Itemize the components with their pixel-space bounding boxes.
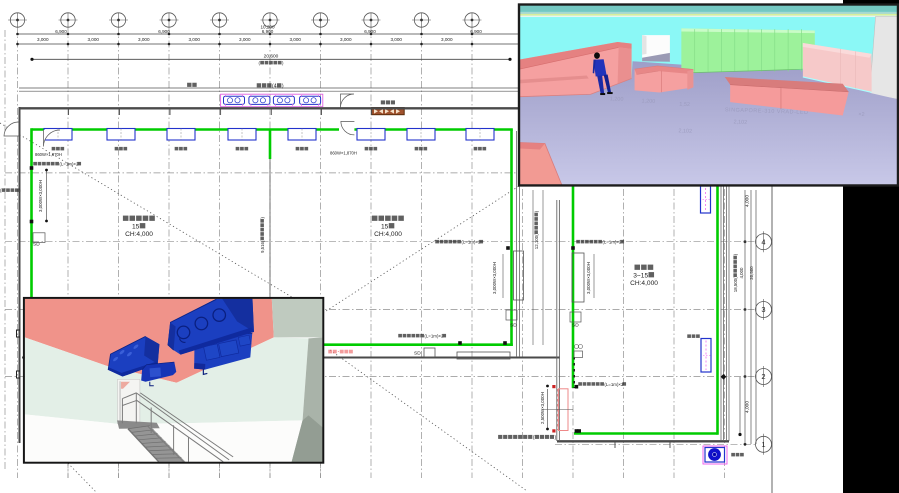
svg-text:3: 3 bbox=[761, 305, 765, 314]
svg-text:3,000: 3,000 bbox=[87, 37, 99, 42]
svg-text:3,000W×3,000H: 3,000W×3,000H bbox=[492, 262, 497, 294]
svg-text:10,200: 10,200 bbox=[260, 25, 274, 30]
svg-text:(L=1m)×2: (L=1m)×2 bbox=[461, 240, 481, 245]
svg-text:2,102: 2,102 bbox=[733, 119, 747, 125]
svg-text:(L=1m)×2: (L=1m)×2 bbox=[604, 382, 624, 387]
svg-text:1: 1 bbox=[761, 440, 765, 449]
svg-text:6,900: 6,900 bbox=[55, 29, 67, 34]
svg-text:4,000: 4,000 bbox=[745, 401, 751, 413]
svg-text:3,000: 3,000 bbox=[390, 37, 402, 42]
svg-text:18,500(: 18,500( bbox=[733, 277, 738, 292]
svg-text:3,000: 3,000 bbox=[188, 37, 200, 42]
svg-text:15: 15 bbox=[132, 224, 140, 231]
svg-text:3,000W×3,000H: 3,000W×3,000H bbox=[38, 180, 43, 212]
svg-text:1,200: 1,200 bbox=[610, 96, 624, 102]
svg-text:SD: SD bbox=[414, 351, 421, 357]
svg-text:3,000: 3,000 bbox=[441, 37, 453, 42]
svg-text:20,500: 20,500 bbox=[749, 266, 754, 280]
svg-text:1,52: 1,52 bbox=[679, 102, 690, 108]
svg-text:3,000: 3,000 bbox=[340, 37, 352, 42]
svg-text:860W×1,870H: 860W×1,870H bbox=[35, 152, 62, 157]
svg-text:6,900: 6,900 bbox=[262, 29, 274, 34]
svg-text:3~15: 3~15 bbox=[633, 273, 648, 280]
svg-text:3,000: 3,000 bbox=[239, 37, 251, 42]
svg-text:9,516(: 9,516( bbox=[260, 240, 265, 253]
svg-text:(4: (4 bbox=[272, 84, 277, 90]
svg-text:2: 2 bbox=[761, 372, 765, 381]
svg-text:1,200: 1,200 bbox=[641, 98, 655, 104]
svg-text:4,000: 4,000 bbox=[739, 267, 744, 279]
svg-text:3,000W×3,000H: 3,000W×3,000H bbox=[586, 262, 591, 294]
svg-text:15: 15 bbox=[381, 224, 389, 231]
svg-text:): ) bbox=[282, 84, 284, 90]
svg-text:12,100(: 12,100( bbox=[534, 234, 539, 249]
svg-text:2,102: 2,102 bbox=[678, 128, 692, 134]
svg-text:4: 4 bbox=[761, 237, 765, 246]
svg-text:4,000: 4,000 bbox=[745, 195, 751, 207]
svg-text:6,900: 6,900 bbox=[364, 29, 376, 34]
svg-text:CH:4,000: CH:4,000 bbox=[125, 231, 153, 238]
svg-text:3,000: 3,000 bbox=[289, 37, 301, 42]
svg-text:6,900: 6,900 bbox=[470, 29, 482, 34]
svg-text:CH:4,000: CH:4,000 bbox=[630, 280, 658, 287]
svg-text:×2: ×2 bbox=[858, 112, 864, 118]
svg-text:860W×1,870H: 860W×1,870H bbox=[330, 151, 357, 156]
svg-text:20,600: 20,600 bbox=[264, 54, 279, 60]
svg-text:SD: SD bbox=[572, 323, 579, 329]
svg-text:CH:4,000: CH:4,000 bbox=[374, 231, 402, 238]
svg-text:SD: SD bbox=[510, 323, 517, 329]
svg-text:(L=1m)×2: (L=1m)×2 bbox=[59, 162, 79, 167]
svg-text:3,000: 3,000 bbox=[138, 37, 150, 42]
svg-text:(L=1m)×2: (L=1m)×2 bbox=[424, 334, 444, 339]
svg-text:3,000: 3,000 bbox=[37, 37, 49, 42]
svg-text:6,900: 6,900 bbox=[158, 29, 170, 34]
svg-text:(L=1m)×2: (L=1m)×2 bbox=[602, 240, 622, 245]
svg-text:2,500W×3,000H: 2,500W×3,000H bbox=[540, 392, 545, 424]
